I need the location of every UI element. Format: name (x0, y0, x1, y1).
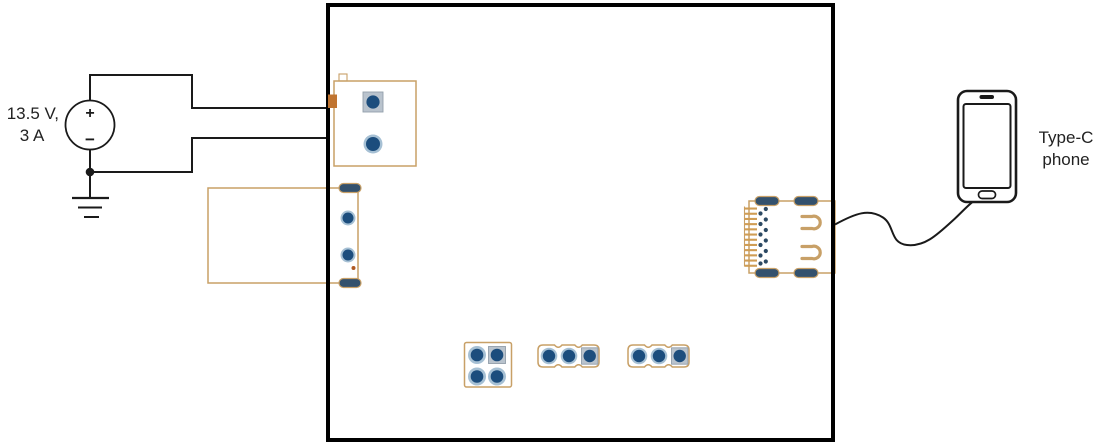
pin (745, 208, 758, 210)
edge-contact (328, 95, 337, 109)
pin (745, 213, 758, 215)
phone-speaker (980, 95, 995, 99)
phone-label-line1: Type-C (1039, 128, 1094, 147)
pad (343, 250, 354, 261)
pad (471, 370, 484, 383)
pin (745, 260, 758, 262)
pin (745, 249, 758, 251)
pad (563, 350, 575, 362)
positive-wire (90, 75, 332, 108)
pad (471, 349, 484, 362)
negative-wire (90, 138, 330, 172)
pin (745, 265, 758, 267)
pin (745, 234, 758, 236)
pad (543, 350, 555, 362)
usb-cable (835, 199, 977, 246)
mount-pad (339, 184, 361, 193)
shell-pad (794, 269, 818, 278)
type-c-phone-icon (958, 91, 1016, 202)
terminal-pad (366, 137, 380, 151)
pad (653, 350, 665, 362)
pin (745, 244, 758, 246)
minus-sign: − (85, 130, 95, 149)
pin (745, 254, 758, 256)
pad (584, 350, 596, 362)
ground-symbol-icon (72, 172, 109, 217)
pin (745, 228, 758, 230)
dc-power-source: + − 13.5 V, 3 A (7, 75, 332, 217)
pad (674, 350, 686, 362)
source-value-line1: 13.5 V, (7, 104, 59, 123)
pin (745, 218, 758, 220)
diagram-svg: + − 13.5 V, 3 A (0, 0, 1100, 448)
pad (343, 213, 354, 224)
phone-label-line2: phone (1042, 150, 1089, 169)
board-outline (328, 5, 833, 440)
pad (633, 350, 645, 362)
evaluation-board (208, 5, 835, 440)
shell-pad (755, 197, 779, 206)
application-diagram: + − 13.5 V, 3 A (0, 0, 1100, 448)
pin (745, 239, 758, 241)
jumper-header-3pin-a (538, 345, 599, 367)
pad (491, 370, 504, 383)
shell-pad (755, 269, 779, 278)
fiducial-dot (352, 266, 356, 270)
mount-pad (339, 279, 361, 288)
shell-pad (794, 197, 818, 206)
plus-sign: + (85, 105, 94, 122)
pad (491, 349, 504, 362)
source-value-line2: 3 A (20, 126, 45, 145)
terminal-pad (366, 95, 379, 108)
jumper-header-3pin-b (628, 345, 689, 367)
phone-screen (964, 104, 1011, 188)
pin (745, 223, 758, 225)
